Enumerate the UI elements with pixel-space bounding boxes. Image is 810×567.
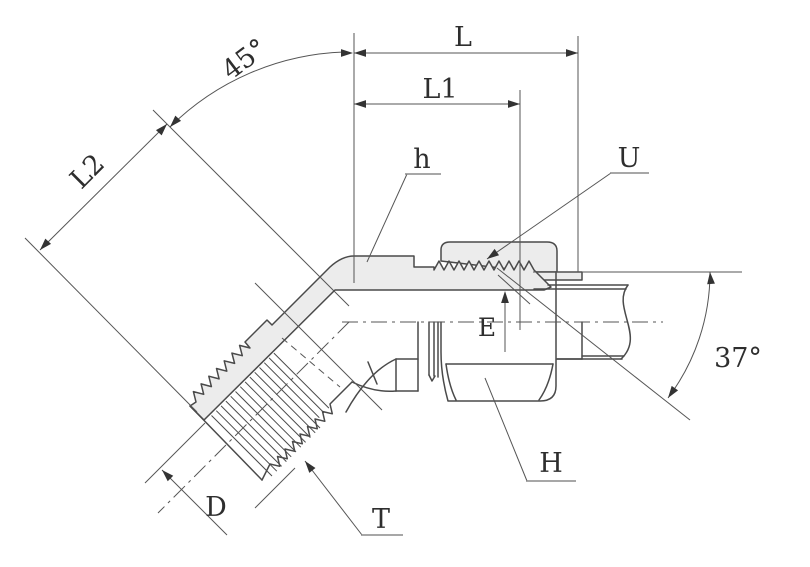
ext-line-d2: [255, 468, 295, 508]
ext-line-d1: [145, 423, 205, 483]
centerlines: [158, 322, 663, 513]
thread-crest-line: [236, 392, 297, 453]
dimension-arrowhead: [354, 100, 366, 108]
fitting-technical-drawing: L L1 L2 45° h U E 37° D T H: [0, 0, 810, 567]
label-D: D: [205, 492, 227, 523]
dimension-arrowhead: [706, 272, 715, 285]
nut-facet-arc-right: [539, 364, 553, 400]
label-E: E: [478, 313, 496, 342]
label-h: h: [413, 144, 430, 175]
dimension-arrowhead: [354, 49, 366, 57]
leader-H: [485, 378, 527, 481]
dim-label-L1: L1: [422, 74, 457, 105]
angle-label-37: 37°: [714, 343, 762, 374]
flare-cone-line: [497, 268, 690, 420]
dim-arc-37: [668, 272, 710, 398]
thread-crest-line: [240, 387, 300, 448]
angle-label-45: 45°: [216, 33, 273, 87]
dim-label-L2: L2: [64, 148, 111, 195]
dim-line-L2: [40, 124, 167, 250]
elbow-body-section: [190, 256, 551, 420]
section-fills: [190, 242, 582, 420]
nut-facet-arc-left: [446, 364, 456, 400]
label-U: U: [618, 143, 641, 174]
exterior-outlines: [190, 272, 630, 480]
bend-inner-curve: [346, 359, 396, 412]
nut-hex-outline: [441, 272, 556, 401]
leader-h: [367, 174, 407, 262]
label-T: T: [372, 504, 390, 535]
thread-crest-line: [250, 377, 311, 438]
leader-T: [305, 461, 362, 535]
dim-label-L: L: [454, 22, 472, 53]
thread-crest-line: [216, 411, 276, 472]
dimension-arrowhead: [501, 291, 509, 303]
ext-line-tip-face: [25, 238, 197, 412]
thread-crest-line: [221, 406, 282, 467]
dimension-arrowhead: [302, 459, 316, 473]
thread-crest-line: [260, 368, 321, 429]
dimension-arrowhead: [508, 100, 520, 108]
dimension-arrowhead: [167, 116, 181, 130]
thread-crest-line: [231, 396, 292, 457]
thread-crest-line: [212, 416, 273, 477]
dimension-arrowhead: [341, 49, 353, 57]
dimension-arrowhead: [566, 49, 578, 57]
label-H: H: [539, 448, 563, 479]
thread-crest-line: [255, 372, 316, 433]
dimension-arrowhead: [665, 386, 678, 400]
thread-crest-line: [245, 382, 306, 443]
ray-45: [153, 110, 349, 306]
